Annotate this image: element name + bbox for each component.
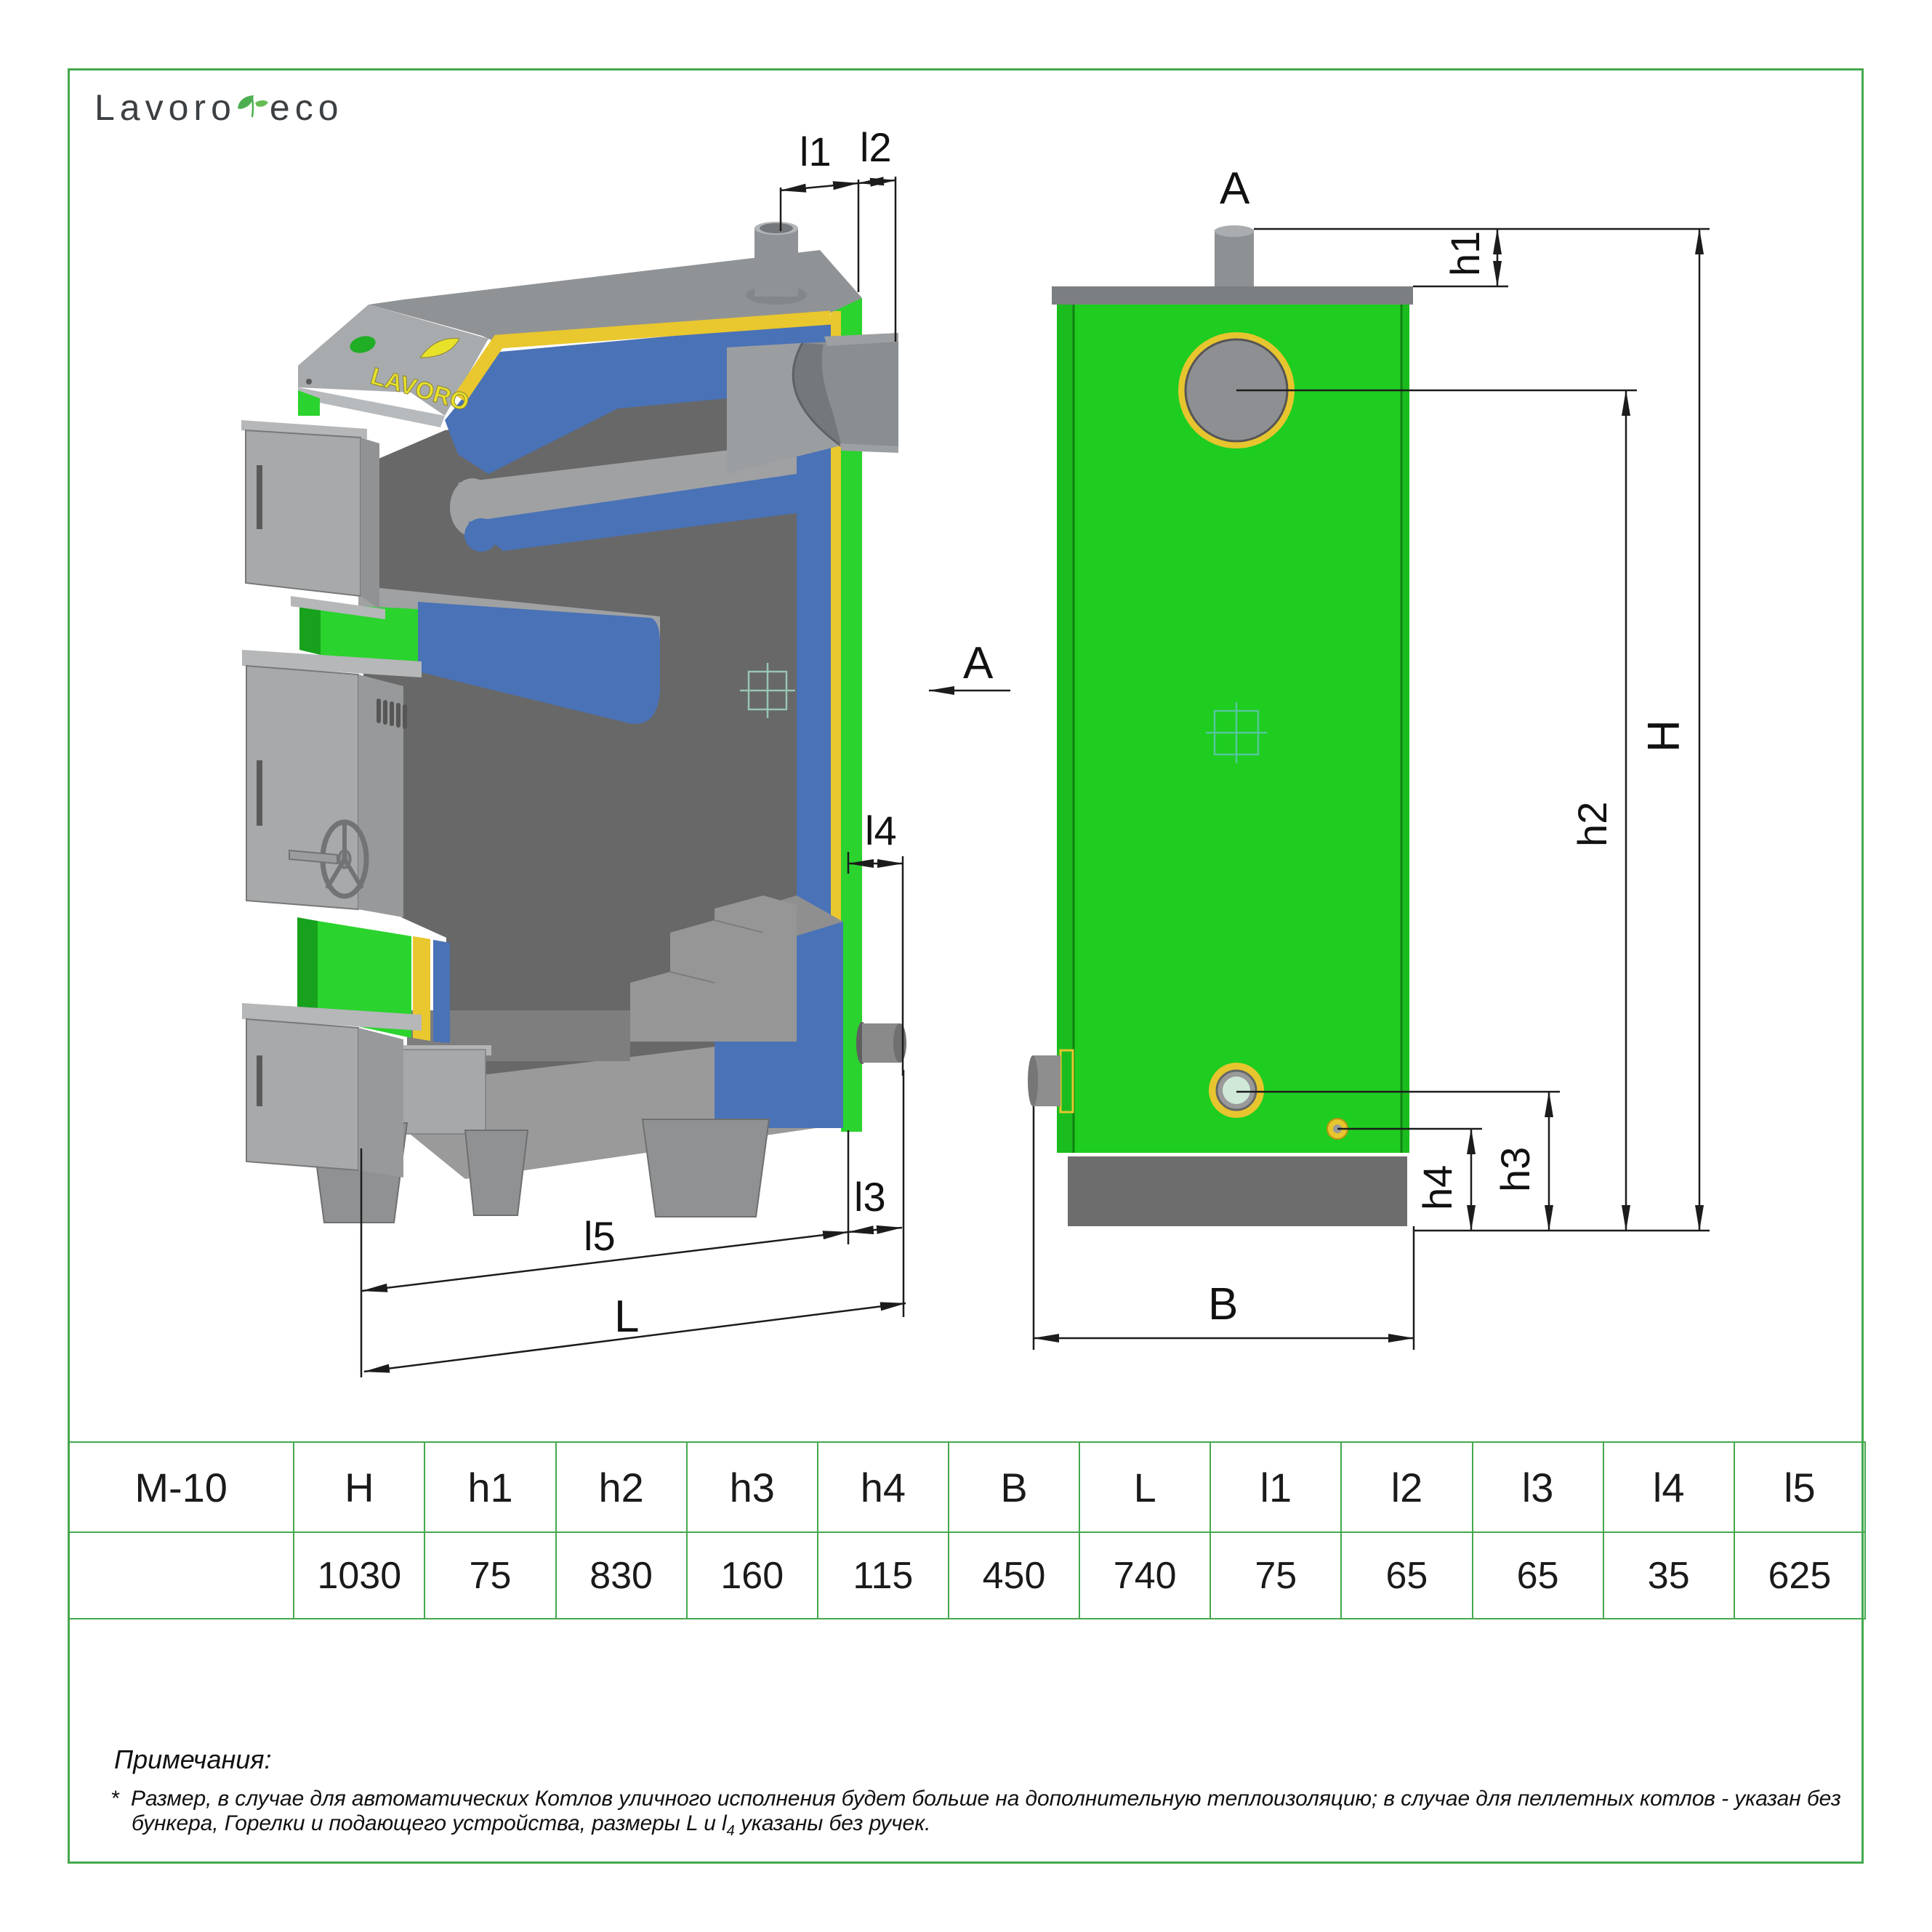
svg-text:h2: h2 <box>1569 802 1615 847</box>
svg-text:A: A <box>1220 164 1250 214</box>
svg-text:h3: h3 <box>1492 1147 1538 1192</box>
svg-text:l4: l4 <box>865 808 897 853</box>
svg-text:h1: h1 <box>1442 231 1488 276</box>
svg-text:l1: l1 <box>800 129 832 174</box>
svg-text:H: H <box>1639 720 1689 752</box>
svg-text:A: A <box>963 638 994 688</box>
svg-text:l2: l2 <box>860 124 892 170</box>
svg-text:l5: l5 <box>584 1213 616 1259</box>
svg-text:B: B <box>1208 1279 1238 1329</box>
svg-text:h4: h4 <box>1414 1165 1460 1210</box>
svg-text:l3: l3 <box>854 1174 886 1220</box>
svg-text:L: L <box>614 1292 639 1342</box>
